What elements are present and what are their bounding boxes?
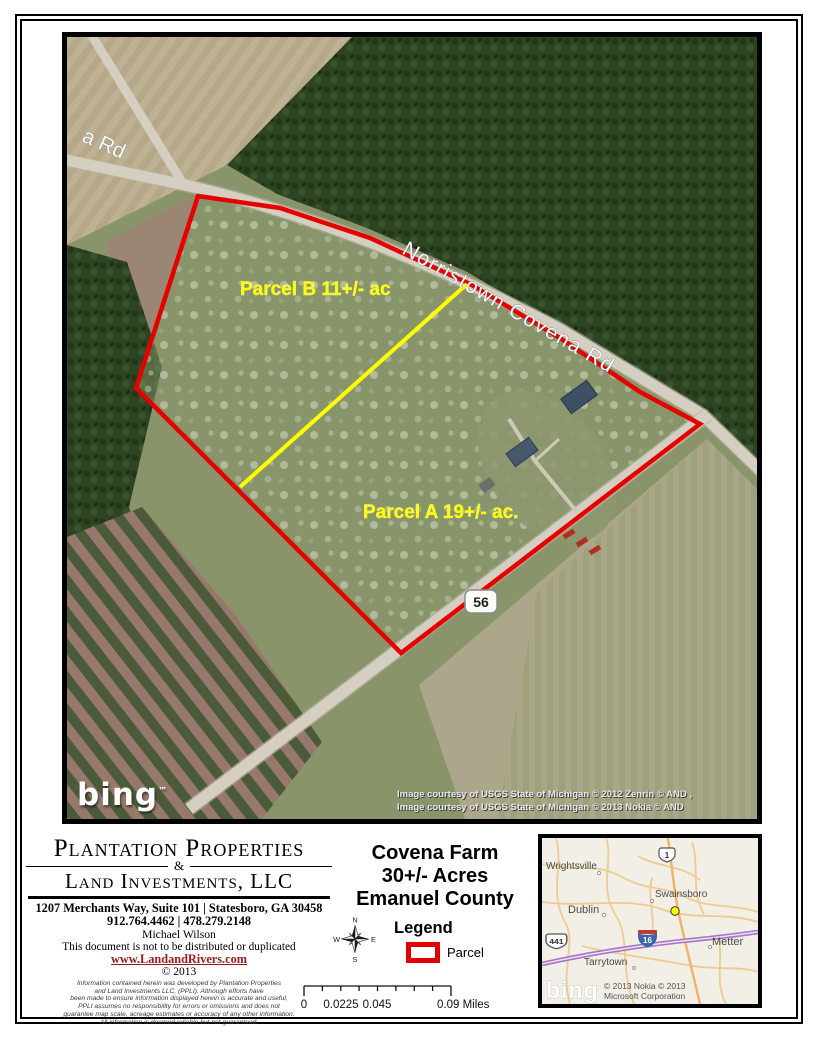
title-line3: Emanuel County xyxy=(330,888,540,911)
disclaimer-line: All information is deemed reliable but n… xyxy=(26,1019,332,1027)
inset-bing-logo: bing xyxy=(546,977,599,1003)
disclaimer: Information contained herein was develop… xyxy=(26,980,332,1026)
rule-segment xyxy=(26,866,168,867)
town-dublin: Dublin xyxy=(568,904,599,916)
parcel-b-label: Parcel B 11+/- ac xyxy=(240,279,391,300)
bing-logo-text: bing xyxy=(77,777,158,813)
compass-w: W xyxy=(333,935,340,944)
aerial-photo: 56 a Rd Norristown Covena Rd Parcel B 11… xyxy=(62,32,762,824)
website-link-row: www.LandandRivers.com xyxy=(26,953,332,966)
company-name-line2: Land Investments, LLC xyxy=(26,870,332,893)
company-block: Plantation Properties & Land Investments… xyxy=(26,836,332,1026)
compass-e: E xyxy=(371,935,376,944)
rule-segment xyxy=(190,866,332,867)
scale-label-0: 0 xyxy=(301,999,307,1011)
i16-shield-text: 16 xyxy=(643,936,652,945)
parcel-legend-swatch xyxy=(406,942,440,963)
agent-name: Michael Wilson xyxy=(26,929,332,941)
town-wrightsville: Wrightsville xyxy=(546,861,597,872)
compass-n: N xyxy=(352,915,357,924)
company-copyright: © 2013 xyxy=(26,966,332,978)
inset-map-canvas: Wrightsville Swainsboro Dublin Tarrytown… xyxy=(542,838,758,1004)
disclaimer-line: guarantee map scale, acreage estimates o… xyxy=(26,1011,332,1019)
thick-rule xyxy=(28,896,330,899)
town-swainsboro: Swainsboro xyxy=(655,889,708,900)
imagery-credit-line2: Image courtesy of USGS State of Michigan… xyxy=(397,802,692,815)
property-location-marker xyxy=(671,907,679,915)
flyer-page: 56 a Rd Norristown Covena Rd Parcel B 11… xyxy=(0,0,816,1056)
scale-label-half: 0.045 xyxy=(363,999,392,1011)
us1-shield-text: 1 xyxy=(665,851,670,860)
legend-row: Parcel xyxy=(406,942,484,963)
us1-shield: 1 xyxy=(659,848,675,862)
parcel-a-label: Parcel A 19+/- ac. xyxy=(363,502,518,523)
aerial-scene: 56 a Rd Norristown Covena Rd Parcel B 11… xyxy=(67,37,757,819)
compass-rose: N E S W xyxy=(331,913,379,965)
route-56-text: 56 xyxy=(473,594,489,610)
town-metter: Metter xyxy=(712,936,744,948)
compass-s: S xyxy=(353,955,358,964)
route-56-shield: 56 xyxy=(465,590,497,613)
title-line2: 30+/- Acres xyxy=(330,865,540,888)
disclaimer-line: and Land Investments LLC, (PPLI). Althou… xyxy=(26,988,332,996)
disclaimer-line: PPLI assumes no responsibility for error… xyxy=(26,1003,332,1011)
inset-location-map: Wrightsville Swainsboro Dublin Tarrytown… xyxy=(538,834,762,1008)
title-line1: Covena Farm xyxy=(330,842,540,865)
scale-bar: 0 0.0225 0.045 0.09 Miles xyxy=(296,980,501,1012)
inset-copyright-line2: Microsoft Corporation xyxy=(604,991,686,1001)
bing-logo: bing™ xyxy=(77,777,168,813)
scale-label-quarter: 0.0225 xyxy=(323,999,358,1011)
disclaimer-line: Information contained herein was develop… xyxy=(26,980,332,988)
company-phones: 912.764.4462 | 478.279.2148 xyxy=(26,915,332,928)
parcel-legend-label: Parcel xyxy=(447,945,484,960)
scale-label-full: 0.09 Miles xyxy=(437,999,490,1011)
imagery-credit-line1: Image courtesy of USGS State of Michigan… xyxy=(397,789,692,802)
legend-title: Legend xyxy=(394,919,453,938)
us441-shield: 441 xyxy=(546,934,567,949)
website-link[interactable]: www.LandandRivers.com xyxy=(111,952,247,966)
inset-copyright-line1: © 2013 Nokia © 2013 xyxy=(604,981,686,991)
disclaimer-line: been made to ensure information displaye… xyxy=(26,995,332,1003)
imagery-credit: Image courtesy of USGS State of Michigan… xyxy=(397,789,692,815)
title-block: Covena Farm 30+/- Acres Emanuel County xyxy=(330,842,540,911)
bing-tm: ™ xyxy=(158,787,168,797)
town-tarrytown: Tarrytown xyxy=(584,957,627,968)
us441-shield-text: 441 xyxy=(549,938,564,946)
